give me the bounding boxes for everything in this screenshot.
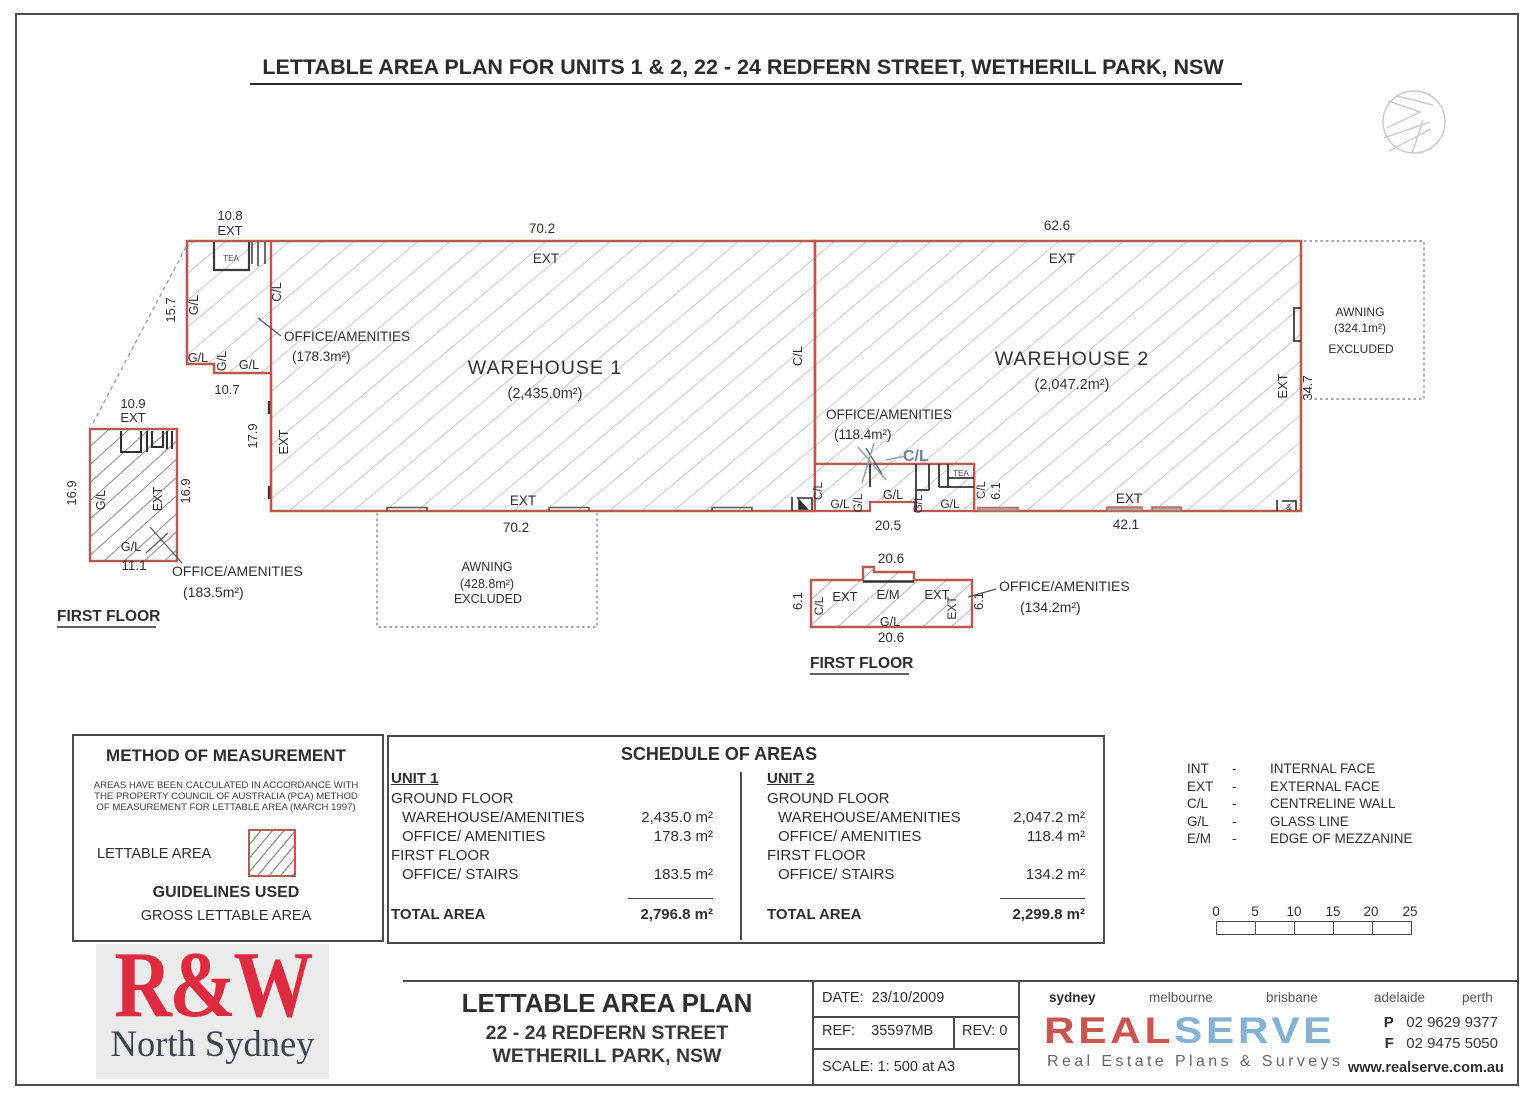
svg-text:&: & [1286, 502, 1292, 512]
svg-text:(428.8m²): (428.8m²) [460, 577, 514, 591]
svg-text:20.6: 20.6 [878, 630, 904, 645]
svg-text:G/L: G/L [880, 615, 900, 629]
svg-text:FIRST FLOOR: FIRST FLOOR [810, 655, 913, 672]
svg-text:G/L: G/L [913, 494, 925, 513]
svg-text:G/L: G/L [940, 497, 960, 511]
svg-text:G/L: G/L [239, 358, 259, 372]
svg-text:FIRST FLOOR: FIRST FLOOR [57, 608, 160, 625]
svg-text:(183.5m²): (183.5m²) [183, 584, 244, 600]
svg-text:(2,435.0m²): (2,435.0m²) [508, 386, 583, 402]
svg-text:G/L: G/L [187, 295, 201, 315]
svg-text:G/L: G/L [94, 490, 108, 510]
svg-text:E/M: E/M [876, 587, 899, 602]
svg-text:EXT: EXT [945, 596, 959, 620]
svg-text:10.9: 10.9 [120, 396, 145, 411]
svg-text:EXT: EXT [151, 486, 165, 511]
svg-text:EXT: EXT [1116, 491, 1142, 506]
svg-text:WAREHOUSE 1: WAREHOUSE 1 [468, 357, 622, 379]
svg-text:70.2: 70.2 [503, 520, 529, 535]
svg-text:(2,047.2m²): (2,047.2m²) [1035, 377, 1110, 393]
svg-text:AWNING: AWNING [462, 560, 513, 574]
svg-text:EXT: EXT [276, 429, 291, 454]
svg-text:10.8: 10.8 [217, 208, 242, 223]
svg-text:C/L: C/L [812, 596, 826, 615]
svg-text:(178.3m²): (178.3m²) [292, 349, 351, 364]
svg-text:G/L: G/L [121, 540, 141, 554]
svg-text:EXT: EXT [217, 223, 242, 238]
svg-text:C/L: C/L [813, 481, 825, 500]
svg-text:10.7: 10.7 [214, 382, 239, 397]
svg-text:70.2: 70.2 [529, 221, 555, 236]
svg-text:C/L: C/L [270, 282, 284, 302]
svg-text:C/L: C/L [976, 480, 988, 499]
svg-text:16.9: 16.9 [64, 480, 79, 505]
svg-text:AWNING: AWNING [1336, 305, 1385, 319]
svg-text:EXT: EXT [832, 589, 857, 604]
svg-text:G/L: G/L [853, 493, 865, 512]
svg-text:EXCLUDED: EXCLUDED [454, 592, 522, 606]
svg-text:6.1: 6.1 [971, 592, 986, 610]
svg-text:EXT: EXT [1275, 373, 1290, 398]
svg-text:C/L: C/L [903, 448, 929, 465]
svg-text:G/L: G/L [188, 351, 208, 365]
svg-text:20.5: 20.5 [875, 518, 901, 533]
svg-text:EXT: EXT [510, 493, 536, 508]
svg-text:OFFICE/AMENITIES: OFFICE/AMENITIES [999, 578, 1130, 594]
svg-text:(134.2m²): (134.2m²) [1020, 599, 1081, 615]
svg-text:(118.4m²): (118.4m²) [834, 427, 892, 442]
svg-text:TEA: TEA [223, 254, 239, 263]
svg-text:G/L: G/L [830, 497, 850, 511]
svg-text:OFFICE/AMENITIES: OFFICE/AMENITIES [826, 407, 952, 422]
svg-text:16.9: 16.9 [178, 478, 193, 503]
svg-text:62.6: 62.6 [1044, 218, 1070, 233]
svg-text:TEA: TEA [953, 469, 969, 478]
svg-text:EXCLUDED: EXCLUDED [1328, 342, 1394, 356]
svg-text:6.1: 6.1 [989, 482, 1003, 499]
svg-text:G/L: G/L [215, 351, 229, 371]
svg-text:EXT: EXT [120, 410, 145, 425]
svg-text:42.1: 42.1 [1113, 517, 1139, 532]
svg-text:EXT: EXT [1049, 251, 1075, 266]
svg-text:6.1: 6.1 [790, 592, 805, 610]
svg-text:WAREHOUSE 2: WAREHOUSE 2 [995, 348, 1149, 370]
svg-text:34.7: 34.7 [1300, 375, 1315, 400]
svg-text:(324.1m²): (324.1m²) [1334, 321, 1386, 335]
svg-text:C/L: C/L [790, 346, 805, 366]
svg-text:EXT: EXT [533, 251, 559, 266]
svg-text:20.6: 20.6 [878, 551, 904, 566]
svg-text:OFFICE/AMENITIES: OFFICE/AMENITIES [284, 329, 410, 344]
svg-text:11.1: 11.1 [121, 558, 146, 573]
svg-text:OFFICE/AMENITIES: OFFICE/AMENITIES [172, 563, 303, 579]
svg-text:17.9: 17.9 [245, 423, 260, 448]
svg-text:15.7: 15.7 [163, 297, 178, 322]
svg-text:G/L: G/L [883, 488, 903, 502]
